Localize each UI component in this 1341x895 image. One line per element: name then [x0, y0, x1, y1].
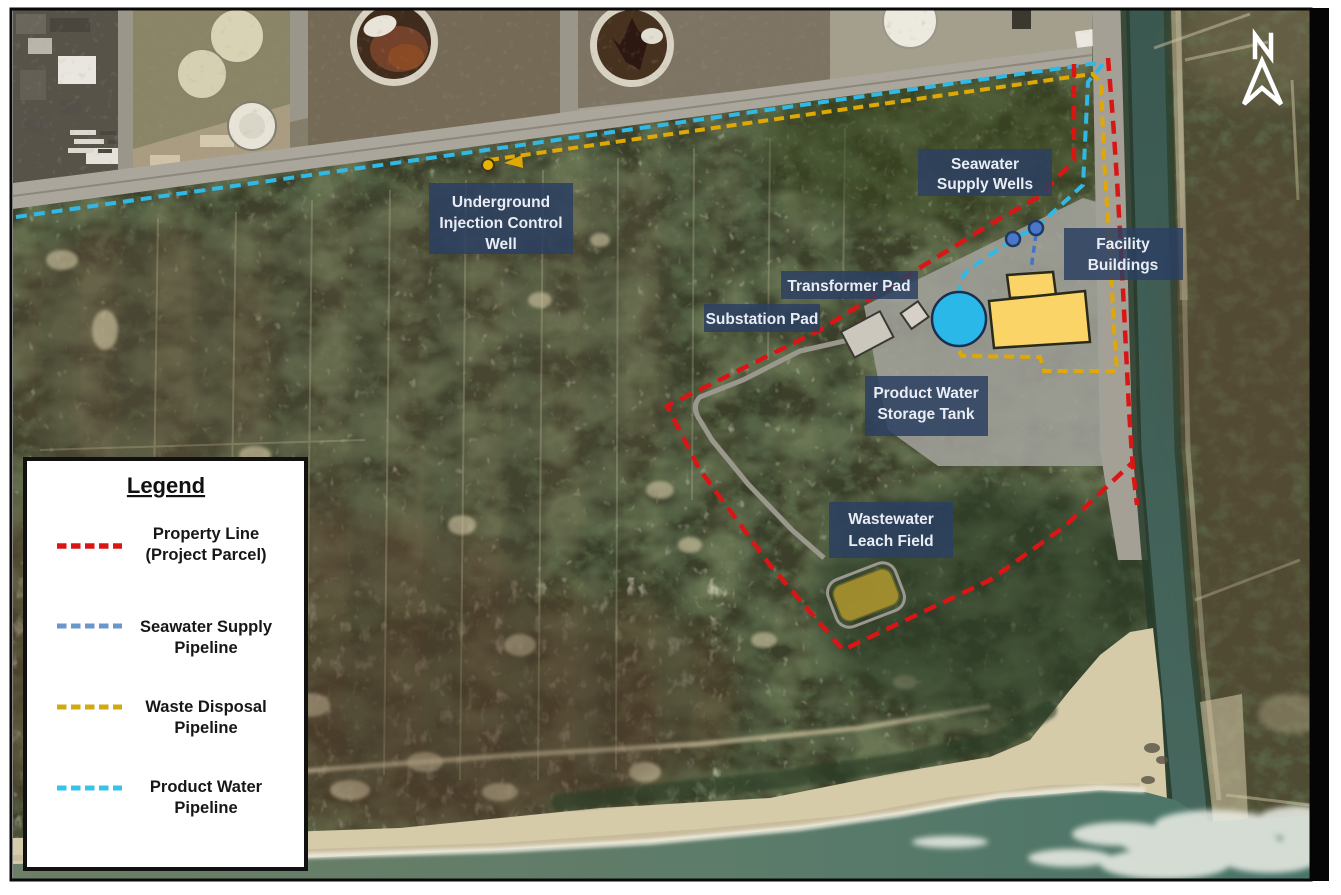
svg-text:Facility: Facility [1096, 236, 1150, 253]
svg-text:Product Water: Product Water [150, 778, 263, 796]
svg-text:Supply Wells: Supply Wells [937, 176, 1033, 193]
svg-text:Wastewater: Wastewater [848, 511, 934, 528]
svg-text:Well: Well [485, 236, 517, 253]
svg-text:Pipeline: Pipeline [174, 719, 237, 737]
svg-text:(Project Parcel): (Project Parcel) [145, 546, 266, 564]
svg-text:Storage Tank: Storage Tank [877, 406, 974, 423]
svg-text:Seawater: Seawater [951, 156, 1019, 173]
svg-text:Transformer Pad: Transformer Pad [787, 278, 910, 295]
svg-text:Buildings: Buildings [1088, 257, 1159, 274]
svg-text:Pipeline: Pipeline [174, 799, 237, 817]
svg-text:Substation Pad: Substation Pad [706, 311, 819, 328]
svg-text:Product Water: Product Water [873, 385, 978, 402]
svg-text:Seawater Supply: Seawater Supply [140, 618, 273, 636]
svg-text:Waste Disposal: Waste Disposal [145, 698, 266, 716]
svg-text:Underground: Underground [452, 194, 550, 211]
svg-text:Property Line: Property Line [153, 525, 259, 543]
svg-text:Injection Control: Injection Control [439, 215, 562, 232]
svg-text:Leach Field: Leach Field [848, 533, 933, 550]
svg-text:Pipeline: Pipeline [174, 639, 237, 657]
svg-text:Legend: Legend [127, 473, 205, 498]
